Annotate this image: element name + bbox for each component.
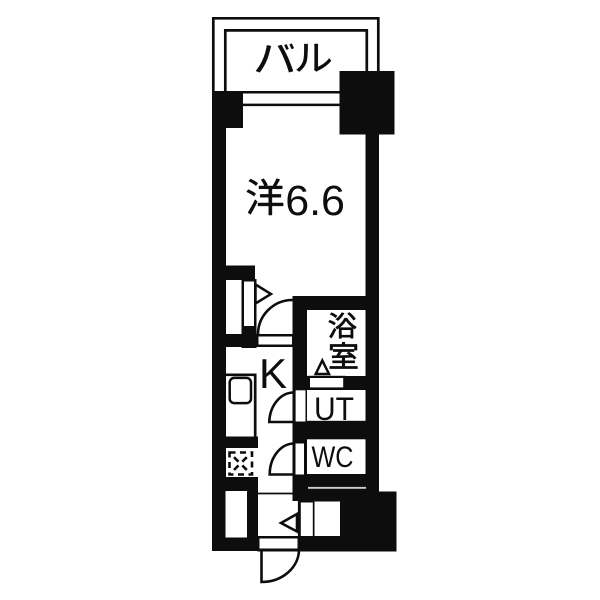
svg-text:6.6: 6.6 — [285, 177, 345, 225]
svg-text:K: K — [259, 350, 287, 397]
svg-text:WC: WC — [312, 441, 354, 474]
